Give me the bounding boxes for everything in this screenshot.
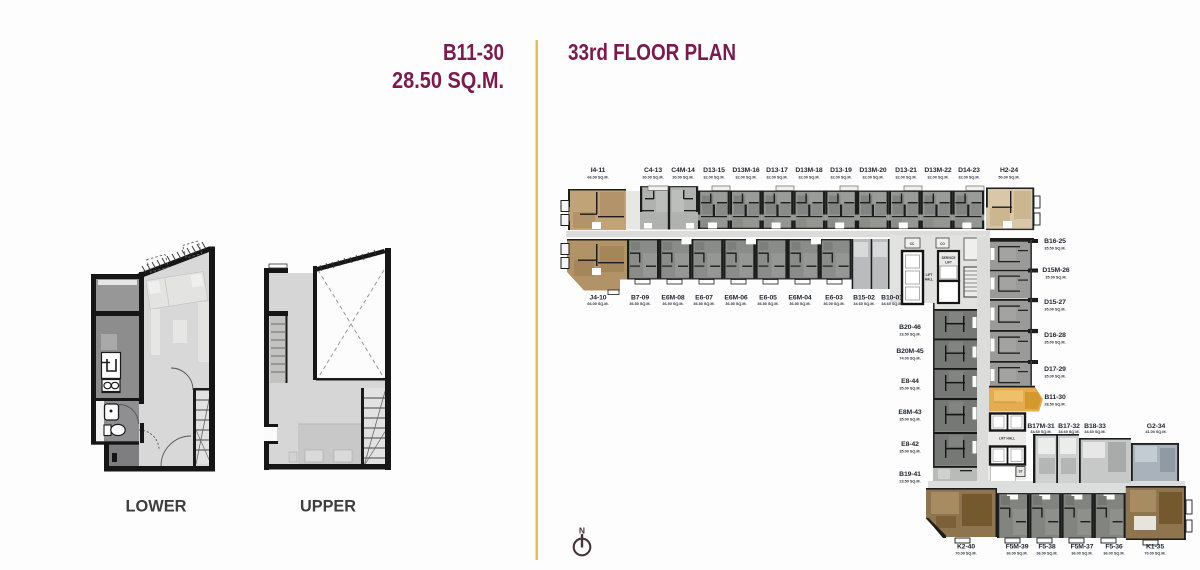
- svg-text:36.00 SQ.M.: 36.00 SQ.M.: [823, 302, 844, 306]
- svg-text:34.60 SQ.M.: 34.60 SQ.M.: [1084, 430, 1105, 434]
- svg-text:66.00 SQ.M.: 66.00 SQ.M.: [587, 176, 608, 180]
- svg-text:C4-13: C4-13: [644, 167, 662, 174]
- svg-text:E6-03: E6-03: [825, 295, 843, 302]
- svg-text:E6-05: E6-05: [759, 295, 777, 302]
- svg-text:E6M-06: E6M-06: [724, 295, 748, 302]
- svg-text:B16-25: B16-25: [1044, 238, 1066, 245]
- svg-text:J4-10: J4-10: [590, 295, 607, 302]
- svg-text:34.60 SQ.M.: 34.60 SQ.M.: [853, 302, 874, 306]
- svg-text:E6M-08: E6M-08: [661, 295, 685, 302]
- svg-text:D13-21: D13-21: [895, 167, 917, 174]
- svg-text:32.00 SQ.M.: 32.00 SQ.M.: [958, 176, 979, 180]
- svg-text:32.00 SQ.M.: 32.00 SQ.M.: [895, 176, 916, 180]
- svg-text:H2-24: H2-24: [1000, 167, 1018, 174]
- svg-text:32.00 SQ.M.: 32.00 SQ.M.: [798, 176, 819, 180]
- svg-text:32.00 SQ.M.: 32.00 SQ.M.: [862, 176, 883, 180]
- svg-text:36.50 SQ.M.: 36.50 SQ.M.: [725, 302, 746, 306]
- svg-text:D15-27: D15-27: [1044, 299, 1066, 306]
- svg-text:D13-19: D13-19: [830, 167, 852, 174]
- svg-text:D13M-18: D13M-18: [795, 167, 823, 174]
- svg-text:E6-07: E6-07: [695, 295, 713, 302]
- svg-text:32.00 SQ.M.: 32.00 SQ.M.: [703, 176, 724, 180]
- svg-text:70.00 SQ.M.: 70.00 SQ.M.: [1144, 552, 1165, 556]
- svg-text:23.50 SQ.M.: 23.50 SQ.M.: [899, 333, 920, 337]
- svg-text:CC: CC: [910, 242, 915, 246]
- svg-text:28.50 SQ.M.: 28.50 SQ.M.: [392, 67, 504, 93]
- svg-text:E6M-04: E6M-04: [788, 295, 812, 302]
- svg-text:D13-15: D13-15: [703, 167, 725, 174]
- svg-text:35.00 SQ.M.: 35.00 SQ.M.: [1045, 276, 1066, 280]
- svg-text:B19-41: B19-41: [899, 471, 921, 478]
- svg-text:32.00 SQ.M.: 32.00 SQ.M.: [735, 176, 756, 180]
- svg-text:66.00 SQ.M.: 66.00 SQ.M.: [587, 302, 608, 306]
- svg-text:LOWER: LOWER: [126, 497, 187, 516]
- svg-text:B15-02: B15-02: [853, 295, 875, 302]
- svg-text:34.60 SQ.M.: 34.60 SQ.M.: [1058, 430, 1079, 434]
- svg-text:35.00 SQ.M.: 35.00 SQ.M.: [899, 418, 920, 422]
- svg-text:D13M-20: D13M-20: [859, 167, 887, 174]
- svg-text:35.50 SQ.M.: 35.50 SQ.M.: [1044, 247, 1065, 251]
- svg-text:LIFT HALL: LIFT HALL: [999, 437, 1015, 441]
- svg-text:28.50 SQ.M.: 28.50 SQ.M.: [1044, 403, 1065, 407]
- svg-text:35.00 SQ.M.: 35.00 SQ.M.: [1044, 375, 1065, 379]
- svg-text:LIFT: LIFT: [926, 273, 933, 277]
- svg-text:N: N: [579, 526, 585, 536]
- svg-text:36.50 SQ.M.: 36.50 SQ.M.: [789, 302, 810, 306]
- svg-text:K1-35: K1-35: [1146, 544, 1164, 551]
- svg-text:35.00 SQ.M.: 35.00 SQ.M.: [1044, 308, 1065, 312]
- svg-text:36.00 SQ.M.: 36.00 SQ.M.: [1006, 552, 1027, 556]
- svg-text:F5M-37: F5M-37: [1071, 544, 1094, 551]
- svg-text:D15M-26: D15M-26: [1042, 267, 1070, 274]
- svg-text:36.50 SQ.M.: 36.50 SQ.M.: [629, 302, 650, 306]
- svg-text:B20-46: B20-46: [899, 324, 921, 331]
- svg-text:F5M-39: F5M-39: [1006, 544, 1029, 551]
- svg-text:35.00 SQ.M.: 35.00 SQ.M.: [899, 387, 920, 391]
- svg-text:D17-29: D17-29: [1044, 366, 1066, 373]
- svg-text:B18-33: B18-33: [1084, 423, 1106, 430]
- svg-text:K2-40: K2-40: [957, 544, 975, 551]
- svg-text:B10-01: B10-01: [881, 295, 903, 302]
- svg-text:70.00 SQ.M.: 70.00 SQ.M.: [955, 552, 976, 556]
- svg-text:LIFT: LIFT: [945, 261, 952, 265]
- svg-text:B20M-45: B20M-45: [896, 348, 924, 355]
- svg-text:33rd FLOOR PLAN: 33rd FLOOR PLAN: [568, 39, 736, 65]
- svg-text:ST: ST: [1018, 470, 1022, 474]
- svg-text:B7-09: B7-09: [631, 295, 649, 302]
- svg-text:36.50 SQ.M.: 36.50 SQ.M.: [757, 302, 778, 306]
- svg-text:D13-17: D13-17: [766, 167, 788, 174]
- svg-text:B17M-31: B17M-31: [1027, 423, 1055, 430]
- svg-text:30.00 SQ.M.: 30.00 SQ.M.: [642, 176, 663, 180]
- svg-text:36.00 SQ.M.: 36.00 SQ.M.: [1103, 552, 1124, 556]
- svg-text:D13M-22: D13M-22: [924, 167, 952, 174]
- svg-text:36.00 SQ.M.: 36.00 SQ.M.: [1071, 552, 1092, 556]
- svg-text:35.00 SQ.M.: 35.00 SQ.M.: [1044, 341, 1065, 345]
- svg-text:23.50 SQ.M.: 23.50 SQ.M.: [899, 480, 920, 484]
- svg-text:36.50 SQ.M.: 36.50 SQ.M.: [693, 302, 714, 306]
- svg-text:B11-30: B11-30: [443, 39, 504, 65]
- svg-text:F5-36: F5-36: [1105, 544, 1123, 551]
- svg-text:E8-44: E8-44: [901, 378, 919, 385]
- svg-text:36.00 SQ.M.: 36.00 SQ.M.: [1036, 552, 1057, 556]
- svg-text:D14-23: D14-23: [958, 167, 980, 174]
- svg-text:30.00 SQ.M.: 30.00 SQ.M.: [672, 176, 693, 180]
- svg-text:34.60 SQ.M.: 34.60 SQ.M.: [1030, 430, 1051, 434]
- svg-text:41.00 SQ.M.: 41.00 SQ.M.: [1145, 430, 1166, 434]
- svg-text:E8-42: E8-42: [901, 441, 919, 448]
- svg-text:B17-32: B17-32: [1058, 423, 1080, 430]
- svg-text:E8M-43: E8M-43: [898, 409, 922, 416]
- svg-text:74.00 SQ.M.: 74.00 SQ.M.: [899, 357, 920, 361]
- svg-text:C4M-14: C4M-14: [671, 167, 695, 174]
- svg-text:32.00 SQ.M.: 32.00 SQ.M.: [766, 176, 787, 180]
- svg-text:UPPER: UPPER: [300, 497, 356, 516]
- svg-text:G2-34: G2-34: [1147, 423, 1166, 430]
- svg-text:D13M-16: D13M-16: [732, 167, 760, 174]
- svg-text:D16-28: D16-28: [1044, 332, 1066, 339]
- svg-text:SERVICE: SERVICE: [942, 256, 956, 260]
- svg-text:F5-38: F5-38: [1038, 544, 1056, 551]
- svg-text:50.00 SQ.M.: 50.00 SQ.M.: [998, 176, 1019, 180]
- svg-text:B11-30: B11-30: [1044, 394, 1066, 401]
- svg-text:35.00 SQ.M.: 35.00 SQ.M.: [899, 450, 920, 454]
- svg-text:36.50 SQ.M.: 36.50 SQ.M.: [662, 302, 683, 306]
- svg-text:CO: CO: [940, 242, 945, 246]
- svg-text:32.00 SQ.M.: 32.00 SQ.M.: [830, 176, 851, 180]
- svg-text:I4-11: I4-11: [591, 167, 606, 174]
- svg-text:32.00 SQ.M.: 32.00 SQ.M.: [927, 176, 948, 180]
- svg-text:34.60 SQ.M.: 34.60 SQ.M.: [881, 302, 902, 306]
- svg-text:HALL: HALL: [925, 278, 934, 282]
